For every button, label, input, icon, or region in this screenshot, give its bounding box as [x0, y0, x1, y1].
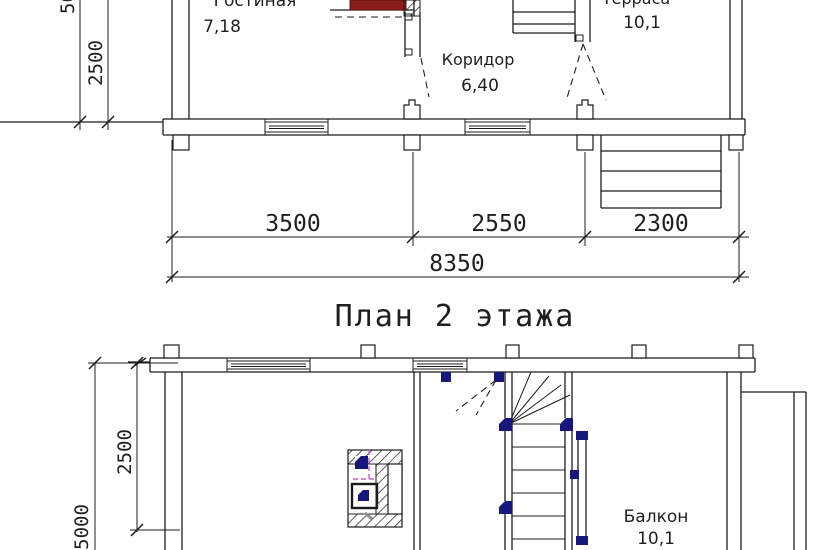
wall-post	[173, 135, 189, 150]
stair-post	[441, 372, 451, 382]
wall-post	[506, 345, 519, 358]
stair-rail-cap	[576, 431, 588, 440]
dim-left-5000-f1: 5000	[57, 0, 79, 14]
dim-left-5000-f2: 5000	[71, 504, 93, 550]
wall-post	[404, 135, 420, 150]
floor2-plan: План 2 этажа	[71, 299, 806, 550]
plan-canvas: Гостиная 7,18 Коридор 6,40 Терраса 10,1 …	[0, 0, 825, 550]
floor2-title: План 2 этажа	[335, 299, 576, 334]
wall-post	[577, 135, 593, 150]
stove-floor2	[348, 450, 402, 527]
floor2-walls	[128, 358, 806, 550]
dim-left-2500-f1: 2500	[85, 40, 107, 86]
room-area-balcony: 10,1	[637, 529, 675, 549]
dim-3500: 3500	[265, 211, 320, 237]
room-label-balcony: Балкон	[624, 507, 689, 527]
door-jamb-icon	[404, 100, 420, 119]
post-highlight	[499, 418, 566, 507]
stair-winders	[509, 372, 570, 424]
stair-door-swing-icon	[456, 380, 496, 415]
room-label-living: Гостиная	[214, 0, 297, 11]
stove-floor1-hatch	[404, 0, 420, 16]
room-label-terrace: Терраса	[601, 0, 670, 8]
dim-2300: 2300	[633, 211, 688, 237]
stair-post	[494, 372, 504, 382]
dim-8350: 8350	[429, 251, 484, 277]
wall-post	[164, 345, 179, 358]
floor-plan-drawing: Гостиная 7,18 Коридор 6,40 Терраса 10,1 …	[0, 0, 825, 550]
stair-rail-cap	[576, 536, 588, 545]
floor1-plan: Гостиная 7,18 Коридор 6,40 Терраса 10,1 …	[0, 0, 749, 283]
stair-rail-tab	[570, 470, 579, 479]
room-area-terrace: 10,1	[623, 13, 661, 33]
floor2-window-icon	[227, 358, 467, 372]
chimney-slot	[388, 464, 402, 514]
door-jamb-icon	[577, 100, 593, 119]
jamb-notch-icon	[576, 35, 583, 41]
wall-post	[739, 345, 753, 358]
room-area-living: 7,18	[203, 17, 241, 37]
stove-floor1	[350, 0, 406, 10]
room-area-corridor: 6,40	[461, 76, 499, 96]
stove-hatch-bottom	[348, 514, 402, 527]
wall-post	[729, 135, 743, 150]
jamb-notch-icon	[405, 49, 412, 55]
room-label-corridor: Коридор	[442, 50, 515, 69]
stair-treads	[505, 424, 572, 539]
dim-left-2500-f2: 2500	[114, 429, 136, 475]
floor1-window-icon	[265, 119, 530, 135]
wall-post	[632, 345, 646, 358]
staircase	[441, 372, 588, 545]
wall-post	[361, 345, 375, 358]
dim-2550: 2550	[471, 211, 526, 237]
